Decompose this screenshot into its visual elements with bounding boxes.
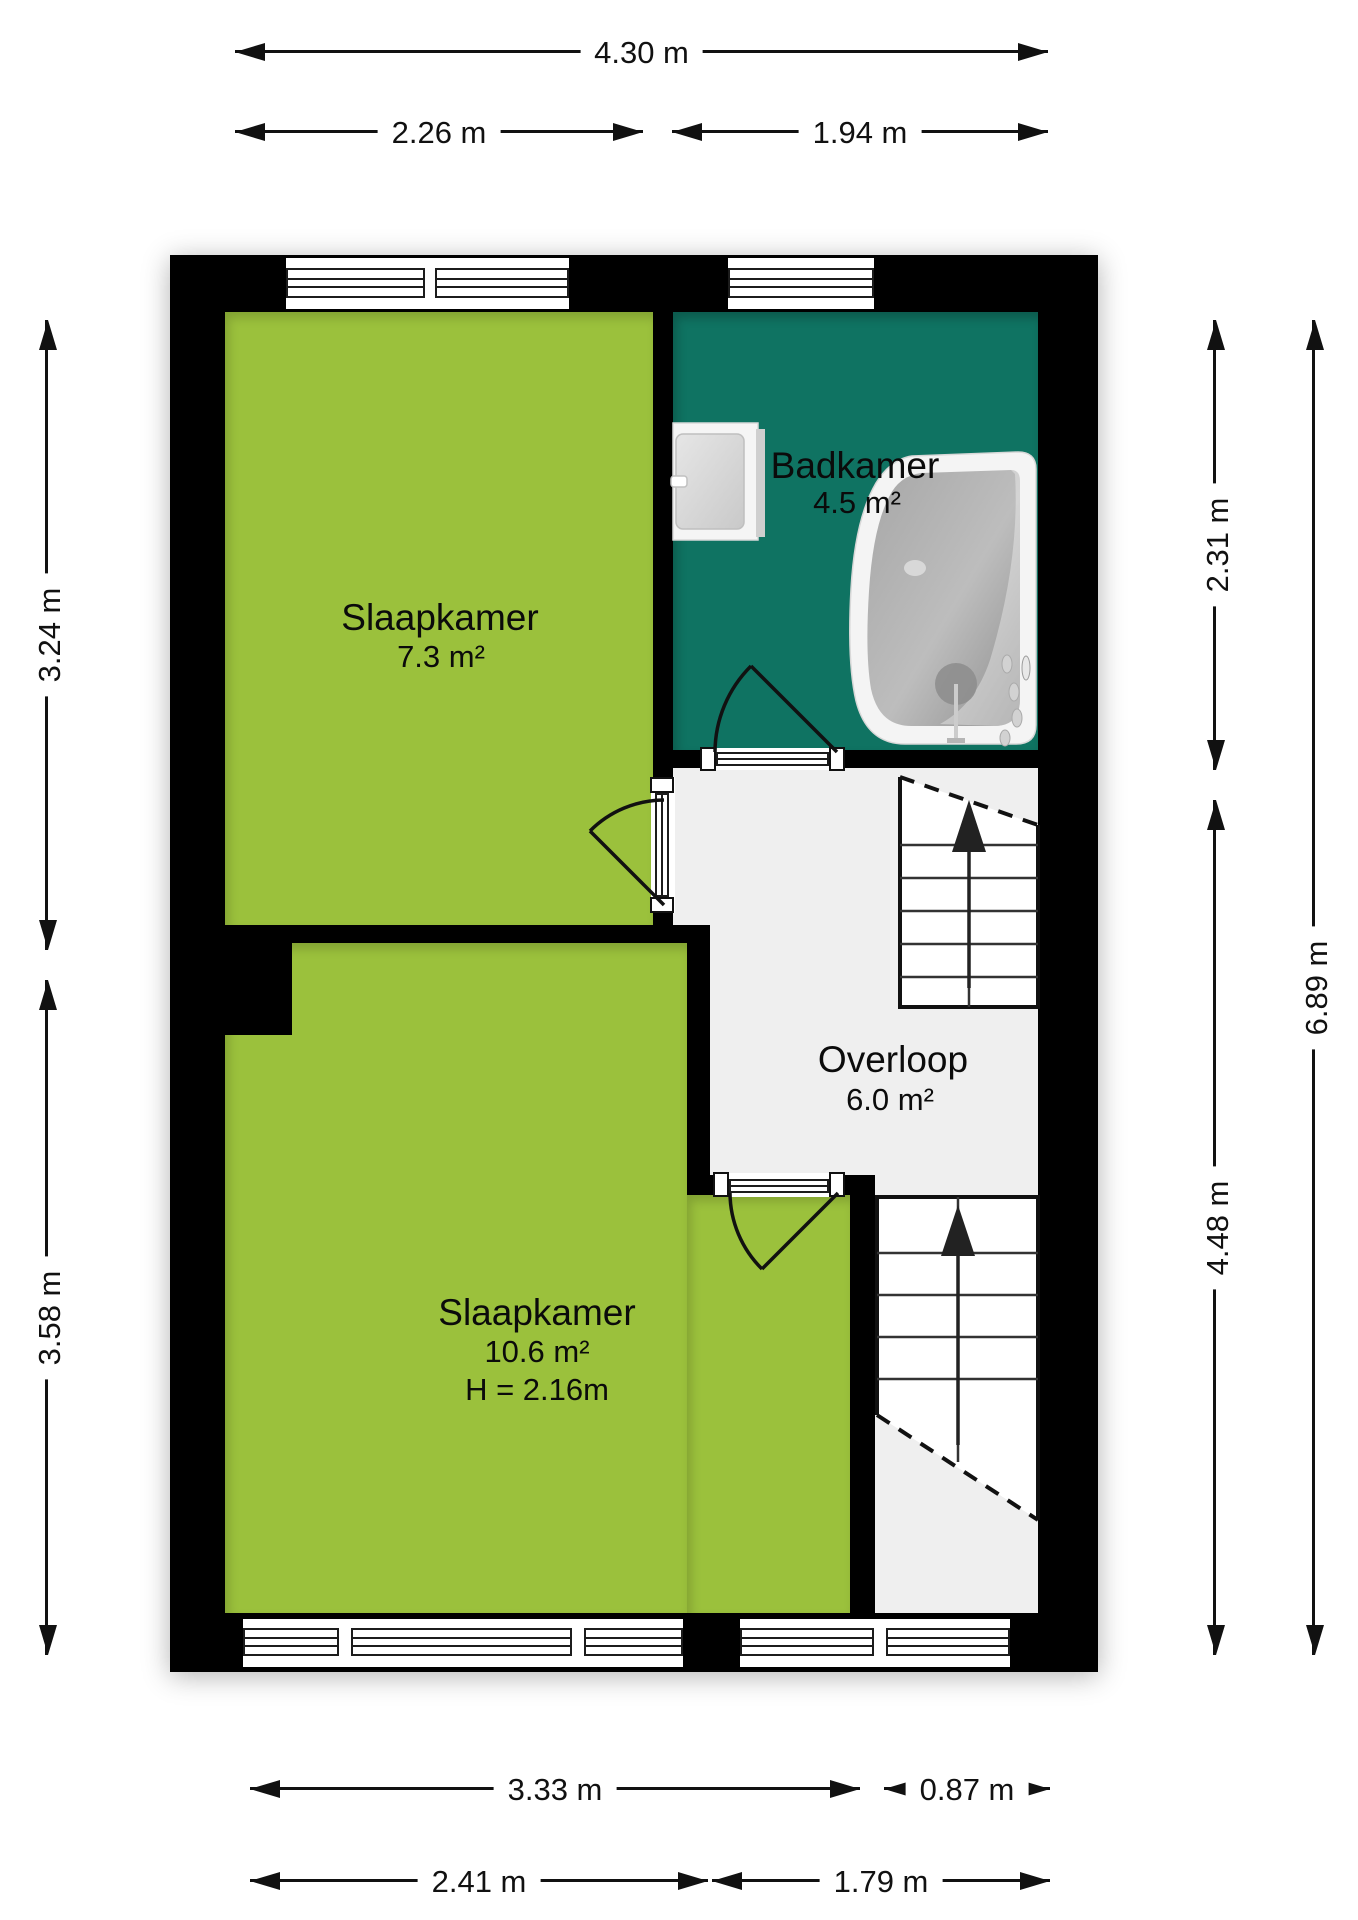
arrowhead-right-icon bbox=[678, 1872, 708, 1890]
arrowhead-down-icon bbox=[1306, 1625, 1324, 1655]
dimension-top-total: 4.30 m bbox=[235, 50, 1048, 53]
arrowhead-down-icon bbox=[39, 920, 57, 950]
floor-plan: Slaapkamer 7.3 m² Badkamer 4.5 m² Overlo… bbox=[0, 0, 1358, 1920]
door-swing-badkamer bbox=[715, 666, 837, 752]
dimension-top-left: 2.26 m bbox=[235, 130, 643, 133]
arrowhead-left-icon bbox=[712, 1872, 742, 1890]
dimension-label: 2.41 m bbox=[418, 1864, 541, 1900]
dimension-top-right: 1.94 m bbox=[672, 130, 1048, 133]
dimension-left-lower: 3.58 m bbox=[45, 980, 48, 1655]
arrowhead-left-icon bbox=[250, 1780, 280, 1798]
arrowhead-left-icon bbox=[672, 123, 702, 141]
room-area-slaapkamer-2: 10.6 m² bbox=[484, 1334, 589, 1370]
arrowhead-up-icon bbox=[1207, 800, 1225, 830]
arrowhead-up-icon bbox=[1306, 320, 1324, 350]
arrowhead-right-icon bbox=[830, 1780, 860, 1798]
door-swing-slaapkamer-2 bbox=[730, 1193, 838, 1269]
dimension-bottom-hall: 0.87 m bbox=[884, 1787, 1050, 1790]
plan-graphics bbox=[0, 0, 1358, 1920]
arrowhead-right-icon bbox=[1018, 123, 1048, 141]
dimension-label: 3.58 m bbox=[32, 1256, 68, 1379]
door-swing-slaapkamer-1 bbox=[590, 800, 664, 905]
dimension-bottom-bedroom: 3.33 m bbox=[250, 1787, 860, 1790]
arrowhead-left-icon bbox=[235, 123, 265, 141]
dimension-label: 1.79 m bbox=[820, 1864, 943, 1900]
arrowhead-down-icon bbox=[1207, 1625, 1225, 1655]
room-label-slaapkamer-1: Slaapkamer bbox=[341, 597, 538, 639]
dimension-label: 6.89 m bbox=[1299, 926, 1335, 1049]
room-area-slaapkamer-1: 7.3 m² bbox=[397, 639, 485, 675]
arrowhead-right-icon bbox=[1020, 1872, 1050, 1890]
room-height-slaapkamer-2: H = 2.16m bbox=[465, 1372, 609, 1408]
dimension-right-hall: 4.48 m bbox=[1213, 800, 1216, 1655]
dimension-bottom-right: 1.79 m bbox=[712, 1879, 1050, 1882]
staircase-lower bbox=[877, 1197, 1038, 1520]
dimension-label: 0.87 m bbox=[906, 1772, 1029, 1808]
room-label-badkamer: Badkamer bbox=[771, 445, 940, 487]
arrowhead-up-icon bbox=[39, 980, 57, 1010]
dimension-right-total: 6.89 m bbox=[1312, 320, 1315, 1655]
dimension-right-bathroom: 2.31 m bbox=[1213, 320, 1216, 770]
dimension-label: 1.94 m bbox=[799, 115, 922, 151]
arrowhead-up-icon bbox=[39, 320, 57, 350]
dimension-label: 2.26 m bbox=[378, 115, 501, 151]
arrowhead-down-icon bbox=[39, 1625, 57, 1655]
arrowhead-right-icon bbox=[1018, 43, 1048, 61]
arrowhead-down-icon bbox=[1207, 740, 1225, 770]
arrowhead-left-icon bbox=[250, 1872, 280, 1890]
room-area-badkamer: 4.5 m² bbox=[813, 485, 901, 521]
room-area-overloop: 6.0 m² bbox=[846, 1082, 934, 1118]
dimension-label: 4.48 m bbox=[1200, 1166, 1236, 1289]
arrowhead-right-icon bbox=[613, 123, 643, 141]
room-label-slaapkamer-2: Slaapkamer bbox=[438, 1292, 635, 1334]
dimension-label: 3.24 m bbox=[32, 574, 68, 697]
room-label-overloop: Overloop bbox=[818, 1039, 968, 1081]
staircase-upper bbox=[900, 777, 1038, 1007]
arrowhead-left-icon bbox=[235, 43, 265, 61]
dimension-label: 4.30 m bbox=[580, 35, 703, 71]
dimension-bottom-left: 2.41 m bbox=[250, 1879, 708, 1882]
arrowhead-up-icon bbox=[1207, 320, 1225, 350]
dimension-label: 2.31 m bbox=[1200, 484, 1236, 607]
dimension-left-upper: 3.24 m bbox=[45, 320, 48, 950]
washbasin-icon bbox=[671, 423, 765, 540]
dimension-label: 3.33 m bbox=[494, 1772, 617, 1808]
